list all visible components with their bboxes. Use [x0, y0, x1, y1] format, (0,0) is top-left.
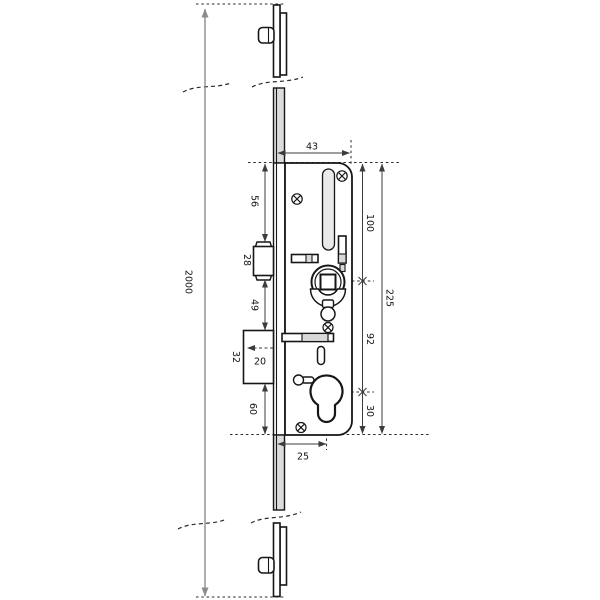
deadbolt-slide-bar: [282, 334, 334, 342]
dim-label-case-height: 225: [384, 289, 395, 307]
slider-segment: [339, 254, 347, 263]
dim-label-spindle-to-cylinder: 92: [364, 333, 375, 345]
break-line: [178, 519, 227, 529]
drive-rail-top: [280, 13, 287, 75]
spindle-follower: [311, 266, 346, 308]
latch-slide-body: [292, 255, 319, 263]
dim-label-bolt-throw: 20: [254, 357, 266, 368]
lock-technical-drawing: 2000 56 28 49 32 20 60 43 25 100 92 30 2…: [0, 0, 600, 600]
dim-label-cylinder-offset: 25: [297, 452, 309, 463]
screw-icon: [323, 323, 333, 333]
faceplate-upper-segment: [274, 88, 285, 163]
break-line: [252, 77, 303, 87]
guide-slot: [323, 169, 335, 250]
deadbolt-slide-segment: [302, 334, 328, 342]
roller-cam-bottom: [259, 558, 275, 574]
screw-icon: [337, 171, 347, 181]
keyhole-slot-circle: [294, 375, 304, 385]
screw-icon: [292, 194, 302, 204]
latch-slide-segment: [306, 255, 312, 263]
capsule-slot: [318, 347, 325, 365]
dim-label-overall-length: 2000: [183, 270, 194, 294]
dim-label-bolt-to-bottom: 60: [247, 403, 258, 415]
keyhole-slot: [294, 375, 315, 385]
dim-label-cylinder-to-bottom: 30: [364, 405, 375, 417]
latch-body: [254, 247, 274, 276]
dim-label-top-to-latch: 56: [249, 195, 260, 207]
lock-case: [282, 163, 352, 435]
roller-cam-body: [259, 558, 275, 574]
break-line: [251, 512, 301, 523]
roller-cam-top: [259, 28, 275, 44]
dim-label-latch-to-bolt: 49: [249, 299, 260, 311]
dim-label-bolt-height: 32: [230, 351, 241, 363]
faceplate-top-tip: [274, 5, 281, 77]
dim-label-top-to-spindle: 100: [364, 214, 375, 232]
latch-bolt: [254, 242, 274, 280]
dim-label-case-width: 43: [306, 142, 318, 153]
spindle-square-hole: [321, 275, 336, 290]
roller-cam-body: [259, 28, 275, 44]
latch-slide-bar: [292, 255, 319, 263]
slider-piece: [339, 236, 347, 272]
dim-label-latch-height: 28: [241, 254, 252, 266]
break-line: [183, 83, 231, 92]
faceplate-lower-segment: [274, 435, 285, 510]
faceplate-case-segment: [274, 163, 286, 435]
pivot-circle: [321, 307, 335, 321]
faceplate-rail: [259, 5, 287, 597]
drive-rail-bottom: [280, 527, 287, 585]
screw-icon: [296, 423, 306, 433]
